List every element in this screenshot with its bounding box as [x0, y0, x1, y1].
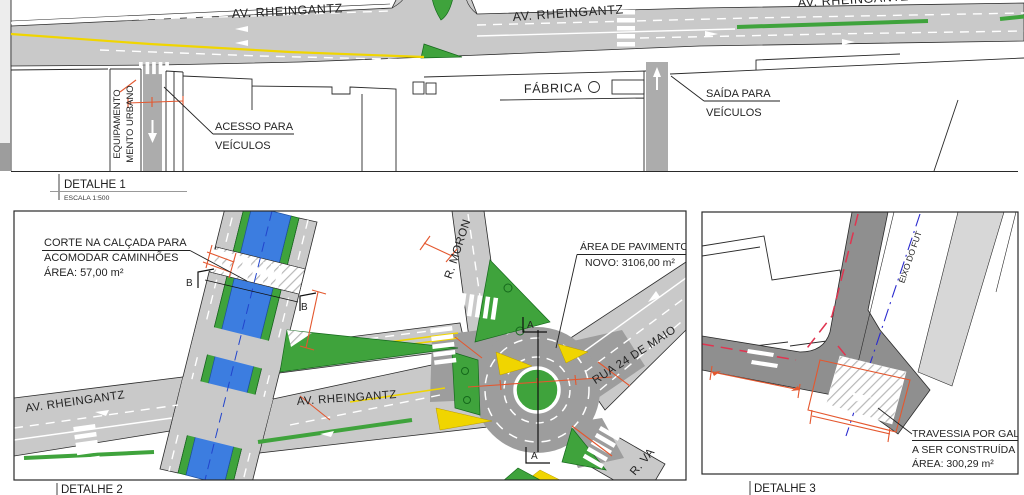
svg-text:ACOMODAR CAMINHÕES: ACOMODAR CAMINHÕES [44, 251, 178, 264]
svg-text:ÁREA DE PAVIMENTO: ÁREA DE PAVIMENTO [580, 240, 689, 253]
factory-symbol-circle [589, 82, 600, 93]
svg-text:VEÍCULOS: VEÍCULOS [706, 106, 762, 119]
roundabout-center-island [515, 368, 559, 412]
factory-symbol-box [612, 80, 644, 94]
detail3-title-block: DETALHE 3 [750, 481, 816, 495]
detail2-plan: A A B B CORTE NA CALÇADA PARA ACOMODAR C… [14, 200, 689, 495]
plan-sheet: AV. RHEINGANTZ AV. RHEINGANTZ AV. RHEING… [0, 0, 1024, 495]
svg-text:EQUIPAMENTO: EQUIPAMENTO [112, 89, 123, 158]
svg-text:TRAVESSIA POR GALE: TRAVESSIA POR GALE [912, 428, 1024, 440]
svg-text:ÁREA: 300,29 m²: ÁREA: 300,29 m² [912, 457, 994, 470]
svg-text:B: B [186, 278, 193, 289]
detail3-title: DETALHE 3 [754, 483, 816, 495]
driveway-access [143, 66, 162, 171]
svg-text:SAÍDA PARA: SAÍDA PARA [706, 87, 771, 100]
detail1-plan: AV. RHEINGANTZ AV. RHEINGANTZ AV. RHEING… [0, 0, 1024, 171]
svg-text:ÁREA: 57,00 m²: ÁREA: 57,00 m² [44, 266, 124, 279]
svg-text:A: A [531, 451, 538, 462]
svg-text:ACESSO PARA: ACESSO PARA [215, 121, 294, 133]
detail1-title: DETALHE 1 [64, 179, 126, 191]
green-median [1000, 17, 1024, 20]
detail2-title: DETALHE 2 [61, 484, 123, 495]
svg-text:MENTO URBANO: MENTO URBANO [125, 85, 136, 162]
leader-line [164, 87, 213, 134]
equipment-label: EQUIPAMENTO MENTO URBANO [112, 85, 136, 162]
svg-text:NOVO: 3106,00 m²: NOVO: 3106,00 m² [585, 257, 675, 269]
detail1-title-block: DETALHE 1 ESCALA 1:500 [50, 174, 187, 202]
factory-label: FÁBRICA [524, 80, 583, 96]
svg-text:A: A [527, 320, 534, 331]
detail1-scale: ESCALA 1:500 [64, 195, 110, 202]
svg-text:A SER CONSTRUÍDA: A SER CONSTRUÍDA [912, 443, 1015, 456]
building-outlines [11, 54, 1024, 171]
detail3-plan: EIXO DO FUT TRAVESSIA POR GALE [702, 212, 1024, 474]
exit-note: SAÍDA PARA VEÍCULOS [671, 76, 780, 119]
leader-line [671, 76, 704, 101]
svg-text:VEÍCULOS: VEÍCULOS [215, 139, 271, 152]
detail2-title-block: DETALHE 2 [57, 483, 123, 495]
svg-text:B: B [301, 302, 308, 313]
svg-text:CORTE NA CALÇADA PARA: CORTE NA CALÇADA PARA [44, 237, 187, 249]
